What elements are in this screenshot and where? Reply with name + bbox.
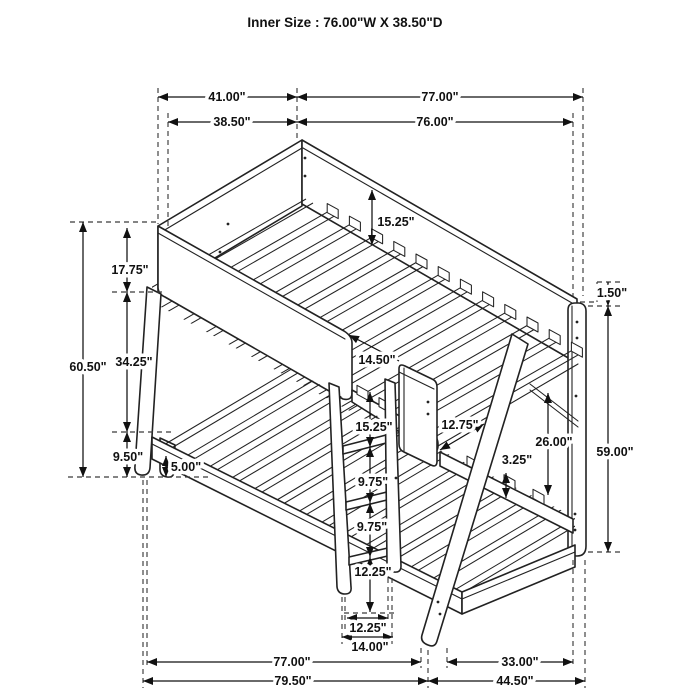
dim-top-width-outer: 77.00" (421, 90, 458, 104)
lower-right-rail (462, 545, 575, 614)
dim-rung-spacing-a: 9.75" (358, 475, 388, 489)
dim-total-height: 60.50" (69, 360, 106, 374)
dim-headboard-to-leg: 12.75" (441, 418, 478, 432)
lower-headboard-panel (399, 365, 437, 466)
dim-access-opening: 14.50" (358, 353, 395, 367)
dim-lower-frame-height: 9.50" (113, 450, 143, 464)
dim-ladder-outer-width: 14.00" (351, 640, 388, 654)
diagram-canvas: 41.00" 77.00" 38.50" 76.00" 60.50" 17.75… (0, 0, 700, 700)
bunk-bed-dimension-diagram: 41.00" 77.00" 38.50" 76.00" 60.50" 17.75… (0, 0, 700, 700)
ladder-left-rail (329, 383, 351, 594)
dim-post-top-offset: 1.50" (597, 286, 627, 300)
upper-guard-panel (158, 226, 352, 399)
dim-lower-clearance: 26.00" (535, 435, 572, 449)
dim-ladder-bottom-height: 12.25" (354, 565, 391, 579)
dim-rail-to-slats: 15.25" (377, 215, 414, 229)
dim-bottom-width-inner: 77.00" (273, 655, 310, 669)
dim-bottom-width-outer: 79.50" (274, 674, 311, 688)
page-title: Inner Size : 76.00"W X 38.50"D (247, 15, 442, 30)
dim-top-depth-inner: 38.50" (213, 115, 250, 129)
dim-ladder-top-spacing: 15.25" (355, 420, 392, 434)
dim-ladder-inner-width: 12.25" (349, 621, 386, 635)
dim-top-depth-outer: 41.00" (208, 90, 245, 104)
dim-post-height: 59.00" (596, 445, 633, 459)
dim-upper-rail-height: 17.75" (111, 263, 148, 277)
dim-slat-bracket-height: 3.25" (502, 453, 532, 467)
dim-bottom-depth-inner: 33.00" (501, 655, 538, 669)
dim-bottom-depth-outer: 44.50" (496, 674, 533, 688)
dim-top-width-inner: 76.00" (416, 115, 453, 129)
dim-rung-spacing-b: 9.75" (357, 520, 387, 534)
dim-bunk-gap: 34.25" (115, 355, 152, 369)
dim-floor-clearance: 5.00" (171, 460, 201, 474)
ladder-rung-1 (343, 435, 386, 454)
